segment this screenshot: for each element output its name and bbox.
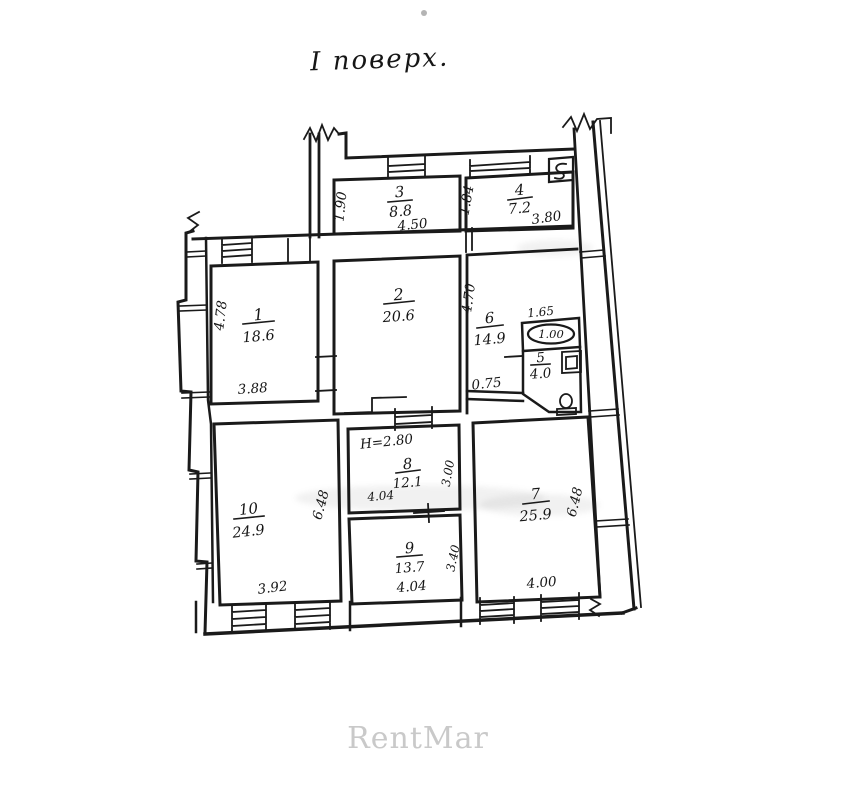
door-opening	[505, 356, 522, 357]
room-3-depth-dim: 1.90	[331, 190, 350, 222]
room-10-width-dim: 3.92	[257, 578, 289, 598]
wall-break-icon	[188, 212, 199, 232]
right-exterior-wall-outer	[600, 121, 641, 607]
closet-area-label: 1.00	[538, 327, 564, 341]
left-exterior-wall	[178, 231, 207, 633]
wall-break-icon	[563, 114, 611, 133]
room-5-area: 4.0	[528, 365, 552, 383]
room-10-area: 24.9	[231, 522, 266, 541]
floor-plan-canvas: І поверх. 3 8.8 4.50 1.90 4 7.2 3.80 1.8…	[0, 0, 847, 800]
window-symbol	[222, 237, 252, 263]
room-7-depth-dim: 6.48	[564, 485, 587, 518]
top-wing-top-wall	[339, 133, 573, 158]
room-1-width-dim: 3.88	[237, 380, 269, 398]
room-2-number: 2	[392, 285, 404, 305]
room-8-width-dim: 4.04	[366, 488, 395, 504]
room-1-depth-dim: 4.78	[211, 299, 231, 332]
room-10-number: 10	[238, 499, 259, 519]
room-7-area: 25.9	[518, 507, 553, 526]
sink-icon	[562, 351, 581, 373]
room-4-area: 7.2	[507, 200, 531, 218]
room-9-area: 13.7	[394, 559, 426, 578]
room-8-depth-dim: 3.00	[439, 459, 457, 488]
room-6-depth-dim: 4.70	[459, 282, 479, 315]
room-6-number: 6	[484, 309, 496, 328]
agency-watermark: RentMar	[347, 721, 489, 756]
room-9-width-dim: 4.04	[395, 578, 427, 597]
room-6-bottom-dim: 0.75	[471, 374, 503, 393]
fixtures	[549, 157, 581, 415]
closet-width-dim: 1.65	[527, 304, 555, 321]
bottom-exterior-wall	[205, 613, 623, 634]
room-8-height-note: Н=2.80	[358, 431, 414, 453]
window-symbol	[295, 602, 330, 630]
door-opening	[288, 238, 310, 262]
door-symbol	[388, 156, 425, 178]
top-wing-left-wall	[310, 134, 319, 237]
room-8-area: 12.1	[392, 474, 423, 493]
room-7-width-dim: 4.00	[525, 574, 558, 593]
room-6-area: 14.9	[473, 331, 507, 350]
corridor-wall-jog	[345, 397, 406, 413]
window-symbol	[232, 604, 266, 632]
room-8-number: 8	[402, 455, 413, 474]
right-exterior-wall	[593, 122, 634, 609]
room-2-outline	[334, 256, 460, 414]
room-3-width-dim: 4.50	[396, 215, 429, 234]
room-3-number: 3	[394, 183, 405, 202]
room-9-number: 9	[404, 539, 416, 558]
room-1-number: 1	[253, 305, 265, 325]
toilet-icon	[560, 394, 572, 408]
scanned-floor-plan-page: І поверх. 3 8.8 4.50 1.90 4 7.2 3.80 1.8…	[0, 0, 847, 800]
room-4-number: 4	[513, 181, 525, 200]
room-7-number: 7	[530, 485, 542, 504]
room-2-area: 20.6	[381, 308, 415, 326]
scan-smudges	[295, 10, 600, 516]
room-5-number: 5	[536, 350, 546, 367]
page-title: І поверх.	[309, 43, 450, 78]
room-1-area: 18.6	[242, 328, 276, 347]
